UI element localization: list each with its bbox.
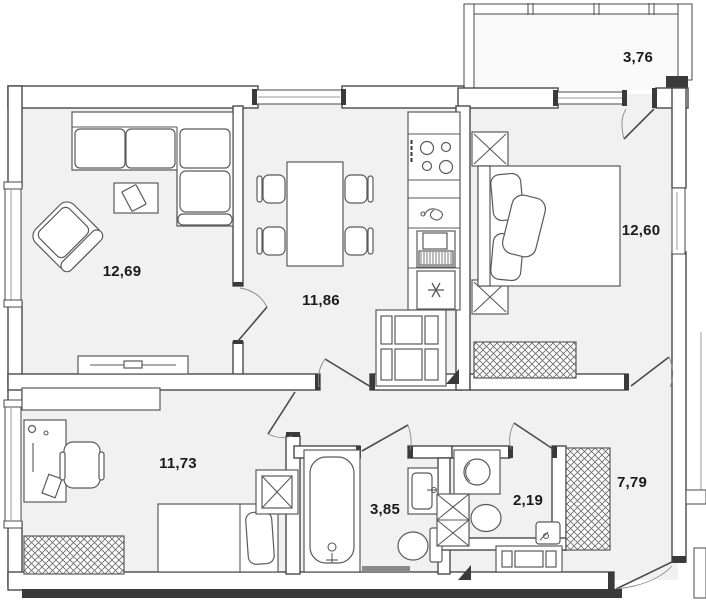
dining-chair <box>257 227 285 255</box>
corner-sink <box>536 522 560 544</box>
door-threshold <box>362 566 410 572</box>
bottom-structure-band <box>22 589 622 598</box>
dining-table <box>287 162 343 266</box>
bedroom-wardrobe <box>474 342 576 378</box>
dining-chair <box>345 175 373 203</box>
desk-chair <box>60 442 104 488</box>
window-left-living <box>4 182 22 307</box>
tv-stand <box>78 356 188 374</box>
floor-plan-svg: 12,69 11,86 12,60 3,76 11,73 3,85 2,19 7… <box>0 0 706 600</box>
tall-cupboard <box>376 310 459 386</box>
window-bedroom-right <box>672 188 685 254</box>
double-bed <box>478 166 620 286</box>
label-bedroom: 12,60 <box>622 222 661 239</box>
window-balcony <box>553 90 627 106</box>
nightstand-lamp-icon <box>472 132 508 166</box>
label-living-room: 12,69 <box>103 263 142 280</box>
window-left-room2 <box>4 400 22 528</box>
label-balcony: 3,76 <box>623 49 653 66</box>
label-second-room: 11,73 <box>159 455 197 472</box>
bathroom-sink <box>408 468 438 514</box>
hall-wardrobe <box>566 448 610 550</box>
label-kitchen-dining: 11,86 <box>302 292 340 309</box>
room2-wardrobe <box>24 536 124 574</box>
fridge-snowflake-icon <box>417 271 455 309</box>
label-hallway: 7,79 <box>617 474 647 491</box>
washing-machine-icon <box>454 450 500 494</box>
bathtub <box>304 450 360 572</box>
label-wc: 2,19 <box>513 492 543 509</box>
dining-chair <box>345 227 373 255</box>
nightstand-lamp-icon <box>256 470 298 514</box>
floor-plan: 12,69 11,86 12,60 3,76 11,73 3,85 2,19 7… <box>0 0 706 600</box>
vent-shaft-icon <box>437 494 469 546</box>
window-top <box>252 89 346 105</box>
coffee-table <box>114 183 158 213</box>
shoe-cabinet <box>496 546 562 572</box>
oven-icon <box>417 231 455 267</box>
label-bathroom: 3,85 <box>370 501 400 518</box>
shelf-unit <box>22 388 160 410</box>
dining-chair <box>257 175 285 203</box>
